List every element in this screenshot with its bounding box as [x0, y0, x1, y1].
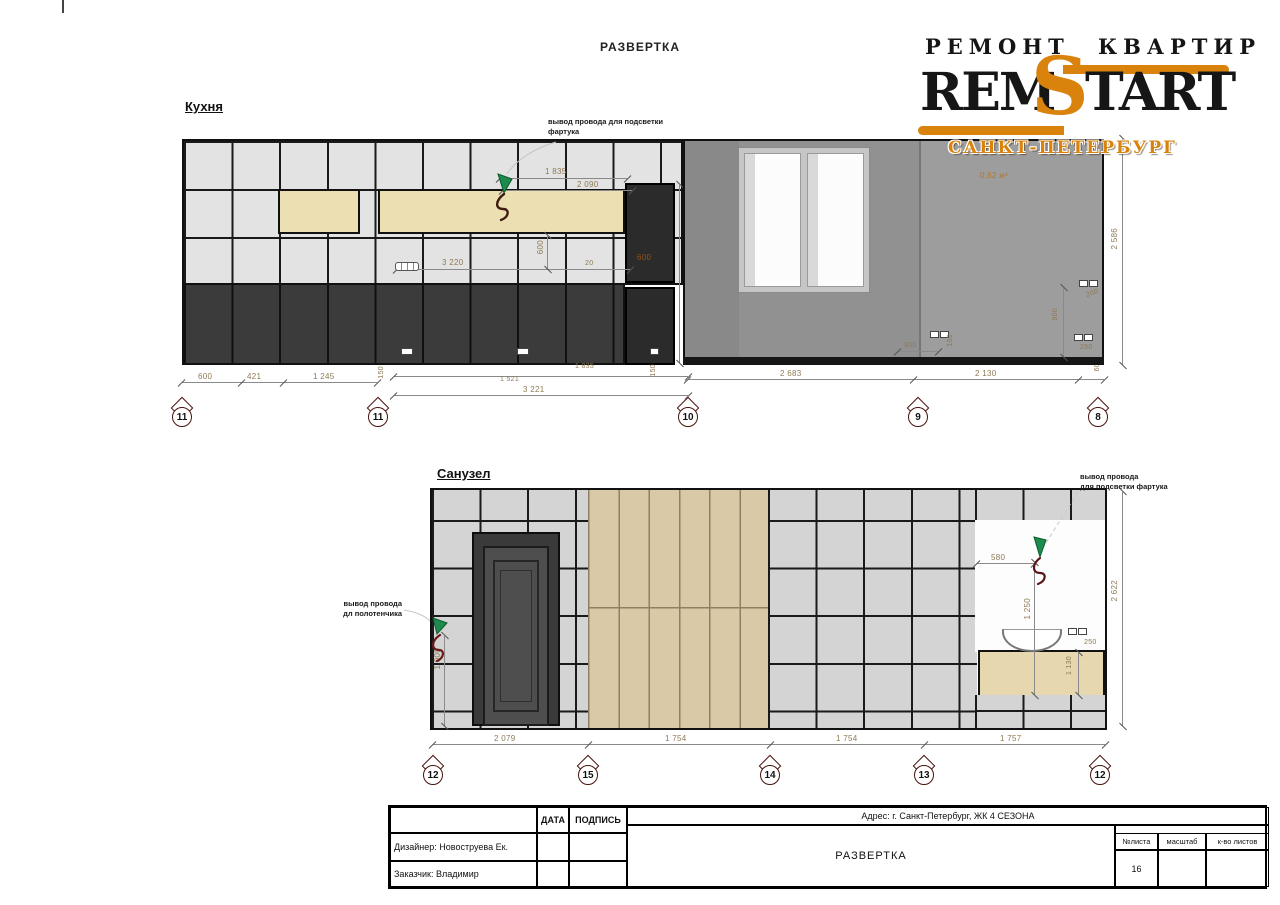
axis-marker: 11: [363, 400, 393, 430]
tb-scale-cell: [1158, 850, 1206, 887]
dim-580: 580: [991, 553, 1005, 562]
kitchen-cabinet-note: 600: [637, 253, 651, 262]
wall-socket-c2: [1084, 334, 1093, 341]
dim-line-2586: [1122, 139, 1123, 365]
dim-line-3220: [397, 269, 630, 270]
dim-150-wall: 150: [947, 334, 954, 347]
dim-2090: 2 090: [577, 180, 599, 189]
bathroom-vanity: [978, 650, 1105, 697]
tb-sign-cell-1: [569, 833, 627, 861]
dim-line-900: [1063, 288, 1064, 357]
dim-2079: 2 079: [494, 734, 516, 743]
kitchen-label: Кухня: [185, 99, 223, 114]
dim-line-2622: [1122, 492, 1123, 726]
kitchen-backsplash-right: [378, 189, 625, 234]
tb-scale-label: масштаб: [1158, 833, 1206, 850]
kitchen-wire-note: вывод провода для подсветки фартука: [548, 117, 663, 137]
tb-designer: Дизайнер: Новоструева Ек.: [390, 833, 537, 861]
kitchen-window: [738, 147, 870, 293]
dim-1130: 1 130: [1066, 656, 1073, 675]
dim-2683: 2 683: [780, 369, 802, 378]
tb-drawing-title: РАЗВЕРТКА: [627, 825, 1115, 887]
bathroom-label: Санузел: [437, 466, 490, 481]
dim-20: 20: [585, 260, 593, 267]
dim-1000: 1 000: [433, 648, 442, 670]
dim-3221: 3 221: [523, 385, 545, 394]
tb-date-cell-2: [537, 861, 569, 887]
dim-250-kitchen: 250: [1080, 344, 1093, 351]
page-frame-tick: [62, 0, 64, 13]
cabinet-socket-2: [517, 348, 529, 355]
bathroom-door-panel-inner: [500, 570, 532, 702]
dim-line-600v: [547, 236, 548, 269]
kitchen-dim-row-a: [182, 382, 377, 383]
kitchen-floor-line: [683, 357, 1104, 364]
tb-sheets-label: к-во листов: [1206, 833, 1269, 850]
dim-600v: 600: [536, 240, 545, 254]
dim-1245: 1 245: [313, 372, 335, 381]
dim-600: 600: [198, 372, 212, 381]
bathroom-tiles-middle: [768, 490, 977, 728]
axis-marker: 15: [573, 758, 603, 788]
towel-wire-note: вывод провода дл полотенчика: [316, 599, 402, 619]
kitchen-dim-row-b: [394, 376, 688, 377]
drawing-sheet: { "page": { "title": "РАЗВЕРТКА" }, "log…: [0, 0, 1280, 905]
tb-date-cell-1: [537, 833, 569, 861]
bathroom-plank-wall: [588, 490, 770, 728]
dim-1250: 1 250: [1023, 598, 1032, 620]
axis-marker: 14: [755, 758, 785, 788]
tb-sign-cell-2: [569, 861, 627, 887]
tb-sign-header: ПОДПИСЬ: [569, 807, 627, 833]
dim-3220: 3 220: [442, 258, 464, 267]
dim-900: 900: [1052, 308, 1059, 321]
wall-socket-b2: [1089, 280, 1098, 287]
towel-leader-line: [404, 610, 430, 621]
axis-marker: 9: [903, 400, 933, 430]
logo-city: САНКТ-ПЕТЕРБУРГ: [948, 138, 1177, 158]
dim-line-1130: [1078, 653, 1079, 695]
window-pane-left: [744, 153, 801, 287]
logo-word-kvartir: КВАРТИР: [1098, 34, 1261, 59]
dim-1521: 1 521: [500, 376, 519, 383]
bathroom-socket-2: [1078, 628, 1087, 635]
kitchen-cabinet-side-dim-line: [679, 185, 680, 363]
logo: РЕМОНТ КВАРТИР REM S TART САНКТ-ПЕТЕРБУР…: [905, 26, 1245, 166]
tb-client: Заказчик: Владимир: [390, 861, 537, 887]
axis-marker: 11: [167, 400, 197, 430]
kitchen-socket-strip: [395, 262, 419, 271]
dim-150a: 150: [378, 366, 385, 379]
tb-empty-cell: [390, 807, 537, 833]
kitchen-area-note: 0,62 м²: [980, 171, 1008, 180]
dim-line-1000: [444, 636, 445, 726]
title-block: Дизайнер: Новоструева Ек. Заказчик: Влад…: [388, 805, 1267, 889]
dim-421: 421: [247, 372, 261, 381]
wall-socket-a1: [930, 331, 939, 338]
dim-1754a: 1 754: [665, 734, 687, 743]
logo-brand-s: S: [1031, 46, 1089, 126]
kitchen-dim-row-total: [394, 395, 688, 396]
axis-marker: 12: [1085, 758, 1115, 788]
tb-sheet-no-label: №листа: [1115, 833, 1158, 850]
window-pane-right: [807, 153, 864, 287]
dim-1835b: 1 835: [575, 363, 594, 370]
apron-wire-note: вывод провода для подсветки фартука: [1080, 472, 1168, 492]
logo-brand-tart: TART: [1085, 62, 1234, 123]
tb-sheet-no: 16: [1115, 850, 1158, 887]
dim-250-bath: 250: [1084, 639, 1097, 646]
dim-line-300: [898, 351, 938, 352]
dim-1835: 1 835: [545, 167, 567, 176]
cabinet-socket-3: [650, 348, 659, 355]
bathroom-tiles-top-right: [975, 490, 1105, 522]
axis-marker: 12: [418, 758, 448, 788]
bathroom-socket-1: [1068, 628, 1077, 635]
bathroom-dim-row: [433, 744, 1105, 745]
dim-line-580: [977, 563, 1034, 564]
kitchen-backsplash-left: [278, 189, 360, 234]
bathroom-tiles-below-vanity: [975, 695, 1105, 728]
dim-line-1250: [1034, 563, 1035, 695]
axis-marker: 8: [1083, 400, 1113, 430]
axis-marker: 10: [673, 400, 703, 430]
dim-line-1835: [500, 178, 627, 179]
axis-marker: 13: [909, 758, 939, 788]
wall-socket-b1: [1079, 280, 1088, 287]
dim-2586: 2 586: [1110, 228, 1119, 250]
dim-150b: 150: [650, 364, 657, 377]
tb-date-header: ДАТА: [537, 807, 569, 833]
dim-1757: 1 757: [1000, 734, 1022, 743]
page-title: РАЗВЕРТКА: [560, 40, 720, 54]
dim-2130: 2 130: [975, 369, 997, 378]
dim-2622: 2 622: [1110, 580, 1119, 602]
dim-300: 300: [904, 342, 917, 349]
dim-1754b: 1 754: [836, 734, 858, 743]
tb-sheets-cell: [1206, 850, 1269, 887]
tb-address: Адрес: г. Санкт-Петербург, ЖК 4 СЕЗОНА: [627, 807, 1269, 825]
wall-socket-c1: [1074, 334, 1083, 341]
kitchen-dim-row-right: [688, 379, 1104, 380]
dim-line-2090: [503, 190, 632, 191]
cabinet-socket-1: [401, 348, 413, 355]
